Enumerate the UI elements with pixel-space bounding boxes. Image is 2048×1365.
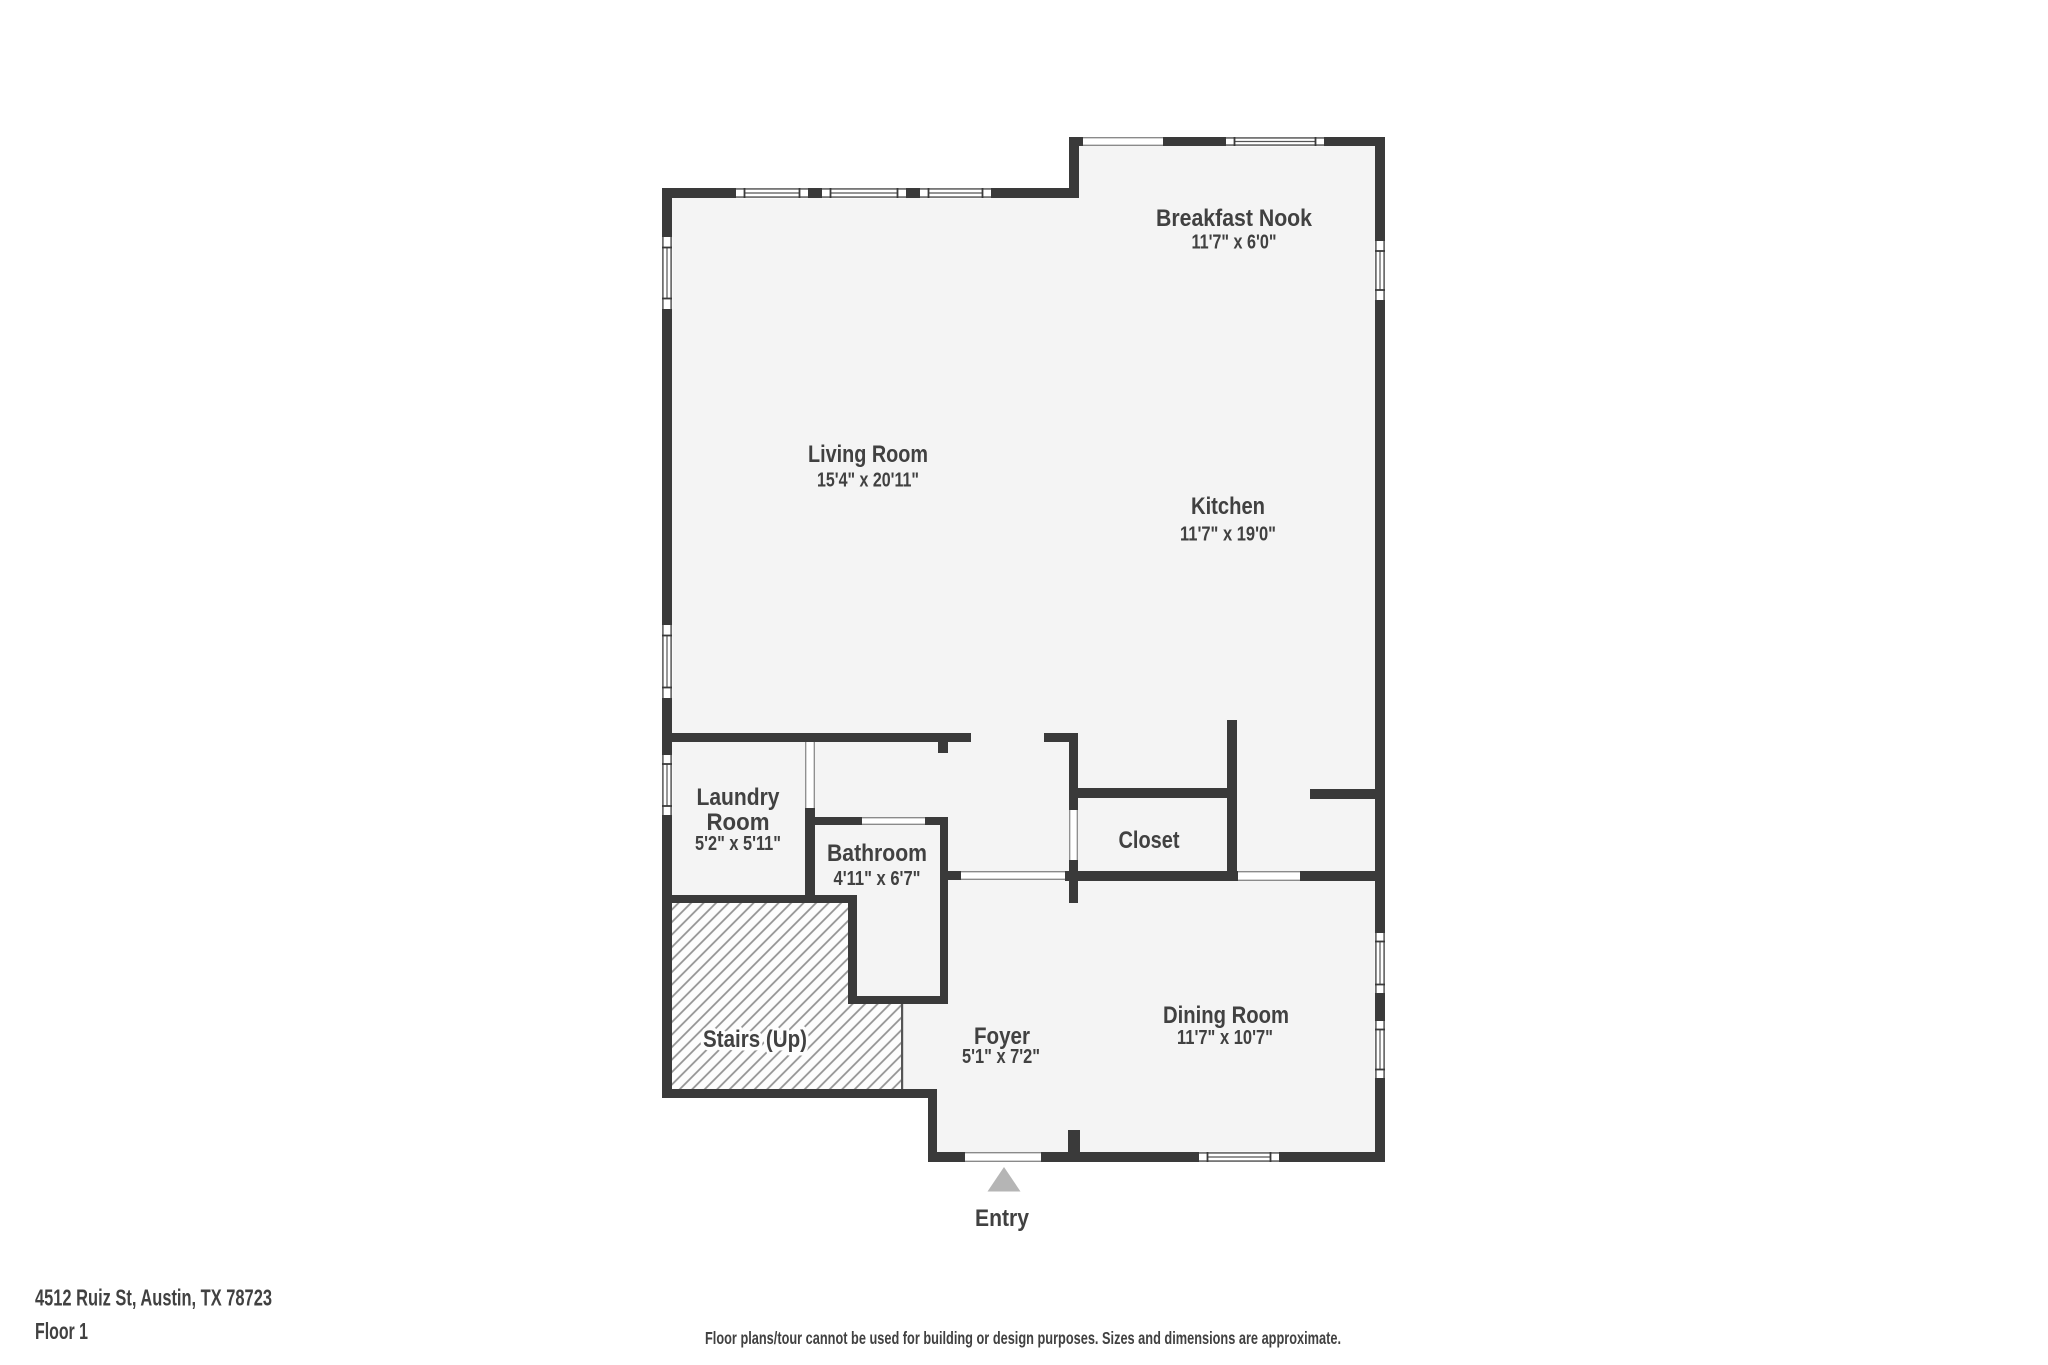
svg-text:4'11" x 6'7": 4'11" x 6'7" [834, 867, 921, 890]
svg-text:11'7" x 19'0": 11'7" x 19'0" [1180, 523, 1276, 546]
svg-text:Stairs (Up): Stairs (Up) [703, 1026, 807, 1053]
svg-text:Kitchen: Kitchen [1191, 493, 1265, 520]
svg-text:Laundry: Laundry [697, 784, 780, 811]
svg-text:5'2" x 5'11": 5'2" x 5'11" [695, 832, 781, 855]
svg-text:5'1" x 7'2": 5'1" x 7'2" [962, 1045, 1040, 1068]
svg-text:11'7" x 6'0": 11'7" x 6'0" [1192, 231, 1277, 254]
svg-text:Breakfast Nook: Breakfast Nook [1156, 205, 1312, 232]
svg-text:Closet: Closet [1119, 827, 1180, 854]
svg-text:Bathroom: Bathroom [827, 840, 927, 867]
svg-text:15'4" x 20'11": 15'4" x 20'11" [817, 469, 919, 492]
svg-text:11'7" x 10'7": 11'7" x 10'7" [1177, 1026, 1273, 1049]
svg-text:Dining Room: Dining Room [1163, 1002, 1289, 1029]
svg-text:4512 Ruiz St, Austin, TX 78723: 4512 Ruiz St, Austin, TX 78723 [35, 1285, 272, 1311]
svg-text:Floor plans/tour cannot be use: Floor plans/tour cannot be used for buil… [705, 1328, 1341, 1348]
svg-text:Floor 1: Floor 1 [35, 1318, 88, 1344]
svg-text:Entry: Entry [975, 1205, 1029, 1232]
svg-text:Living Room: Living Room [808, 441, 928, 468]
